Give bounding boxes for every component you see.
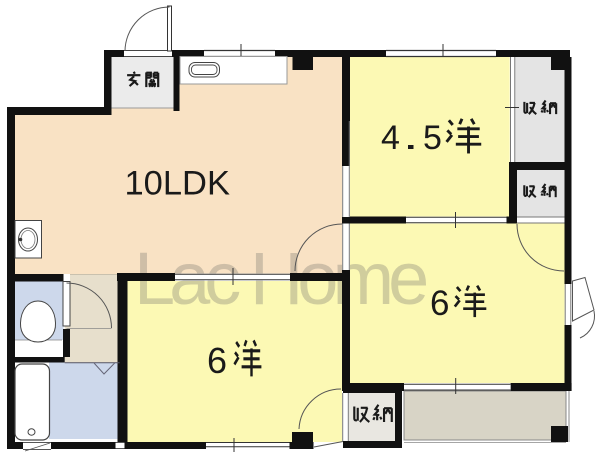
svg-text:10LDK: 10LDK	[125, 165, 231, 203]
svg-text:5: 5	[423, 119, 442, 157]
svg-text:6: 6	[207, 340, 227, 381]
svg-text:4: 4	[381, 119, 400, 157]
svg-text:6: 6	[430, 284, 449, 323]
